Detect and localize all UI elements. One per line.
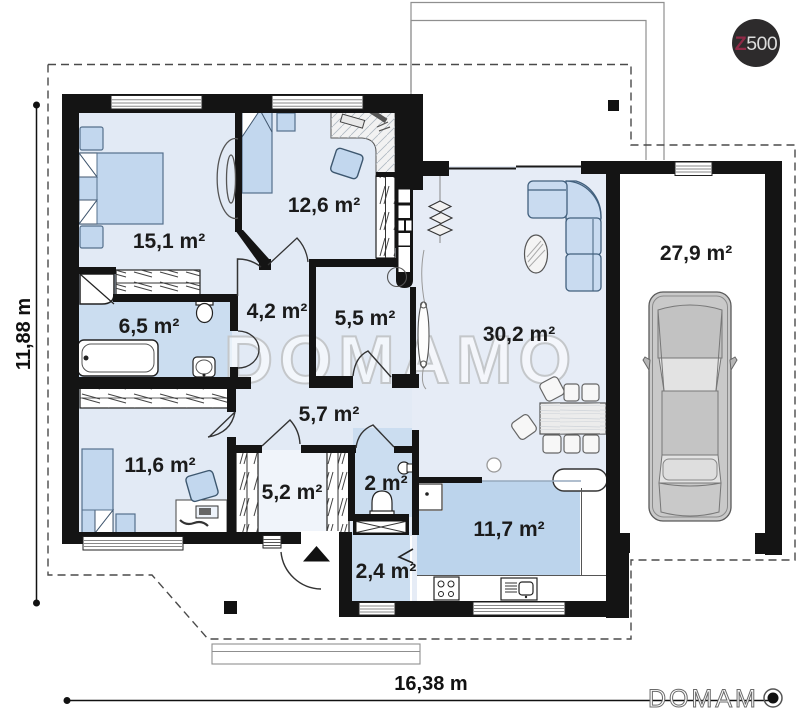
svg-text:DOMAM: DOMAM — [648, 685, 759, 713]
svg-text:5,7 m²: 5,7 m² — [299, 403, 360, 426]
svg-text:12,6 m²: 12,6 m² — [288, 194, 360, 217]
svg-text:27,9 m²: 27,9 m² — [660, 242, 732, 265]
svg-text:4,2 m²: 4,2 m² — [247, 300, 308, 323]
svg-text:5,2 m²: 5,2 m² — [262, 481, 323, 504]
svg-text:2 m²: 2 m² — [364, 472, 407, 495]
svg-text:15,1 m²: 15,1 m² — [133, 230, 205, 253]
svg-text:11,6 m²: 11,6 m² — [124, 454, 195, 477]
svg-text:Z500: Z500 — [735, 33, 778, 55]
svg-text:11,88 m: 11,88 m — [13, 298, 35, 370]
svg-text:11,7 m²: 11,7 m² — [473, 518, 544, 541]
svg-text:2,4 m²: 2,4 m² — [356, 560, 417, 583]
svg-text:5,5 m²: 5,5 m² — [335, 307, 396, 330]
svg-text:30,2 m²: 30,2 m² — [483, 323, 555, 346]
svg-text:6,5 m²: 6,5 m² — [119, 315, 180, 338]
svg-text:16,38 m: 16,38 m — [394, 673, 467, 695]
